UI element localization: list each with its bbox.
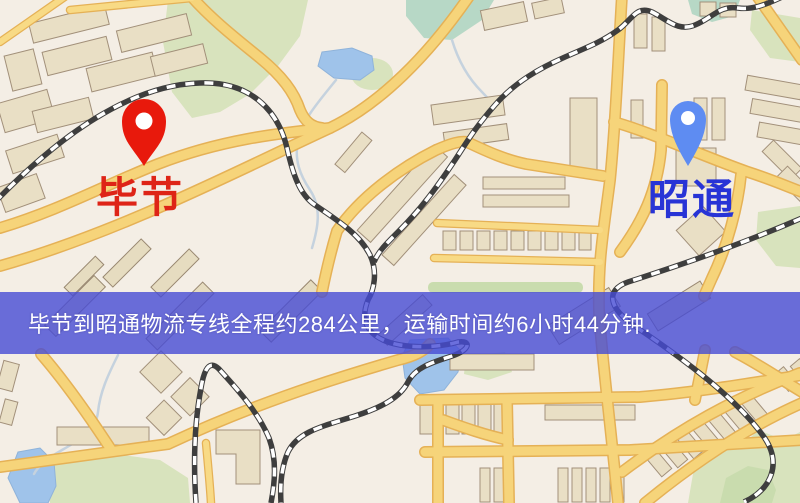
map-route-graphic: 毕节 昭通 毕节到昭通物流专线全程约284公里，运输时间约6小时44分钟. [0, 0, 800, 503]
route-info-banner: 毕节到昭通物流专线全程约284公里，运输时间约6小时44分钟. [0, 292, 800, 354]
origin-pin-hole [136, 113, 153, 130]
destination-label: 昭通 [648, 176, 736, 223]
map-canvas: 毕节 昭通 [0, 0, 800, 503]
destination-pin-hole [681, 111, 695, 125]
route-info-text: 毕节到昭通物流专线全程约284公里，运输时间约6小时44分钟. [0, 307, 651, 339]
origin-label: 毕节 [96, 174, 184, 221]
